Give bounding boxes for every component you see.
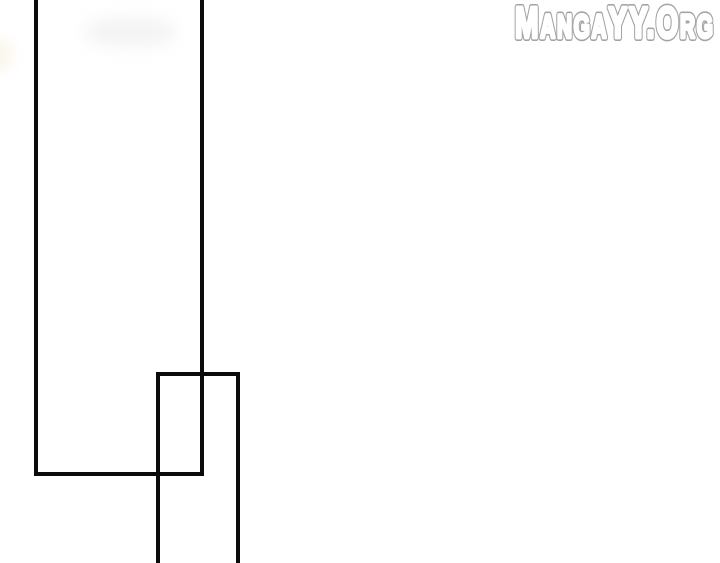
- svg-text:MANGAYY.ORG: MANGAYY.ORG: [515, 0, 715, 47]
